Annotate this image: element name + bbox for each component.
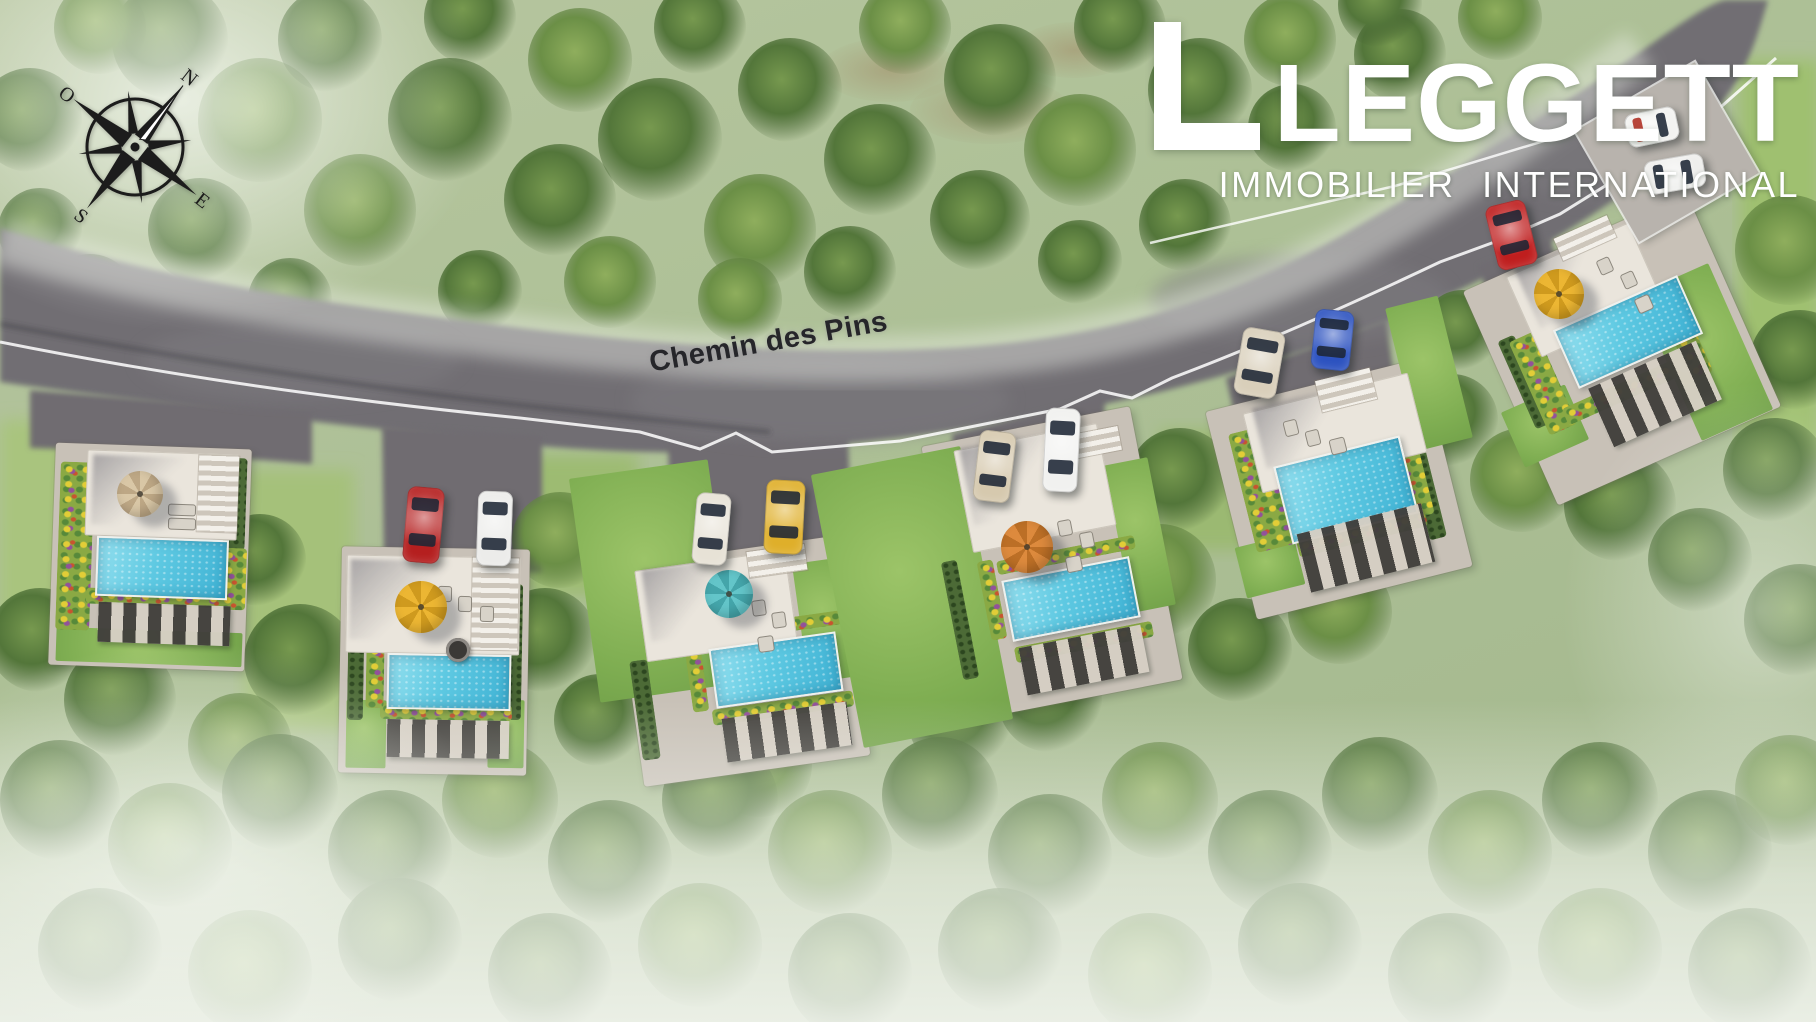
car-windshield <box>1048 459 1074 474</box>
compass-star <box>40 52 230 242</box>
villa-1-stairs <box>197 455 240 532</box>
car-windshield <box>411 497 439 512</box>
villa-3-terrace-furniture-1 <box>771 611 787 629</box>
white-car-villa-2 <box>476 490 514 566</box>
car-windshield <box>979 473 1007 488</box>
villa-4-terrace-furniture-2 <box>1065 555 1084 574</box>
car-windshield <box>1499 239 1530 256</box>
car-windshield <box>482 502 508 516</box>
villa-3-terrace-furniture-2 <box>757 635 775 653</box>
villa-2-pergola <box>387 719 510 759</box>
villa-1-swimming-pool <box>95 536 229 601</box>
car-windshield <box>1050 420 1076 436</box>
car-windshield <box>481 537 507 550</box>
villa-1-parasol-top <box>137 491 143 497</box>
car-windshield <box>1492 209 1523 227</box>
villa-2-terrace-furniture-2 <box>480 606 494 622</box>
white-car-villa-4 <box>1042 407 1081 493</box>
car-windshield <box>1241 368 1273 384</box>
red-car-villa-2 <box>402 486 445 565</box>
villa-2-flower-bed-1 <box>365 644 384 708</box>
villa-4-terrace-furniture-0 <box>1057 519 1074 537</box>
car-windshield <box>700 503 726 517</box>
villa-2-fire-pit <box>446 638 470 662</box>
villa-4-terrace-furniture-1 <box>1079 531 1096 549</box>
villa-1-pergola <box>97 602 230 647</box>
car-windshield <box>408 533 436 547</box>
blue-car-villa-5 <box>1310 308 1355 372</box>
car-windshield <box>769 525 798 538</box>
villa-4-parasol-top <box>1024 544 1030 550</box>
villa-2-parasol-top <box>418 604 424 610</box>
leggett-logo-tagline: IMMOBILIER INTERNATIONAL <box>1154 164 1800 206</box>
car-windshield <box>1246 337 1278 354</box>
compass-rose: N E S O <box>40 52 230 242</box>
car-windshield <box>983 440 1011 455</box>
site-plan-canvas: Chemin des Pins N E S O <box>0 0 1816 1022</box>
villa-6-parasol-top <box>1556 291 1562 297</box>
car-windshield <box>1317 346 1346 358</box>
car-windshield <box>697 536 723 550</box>
compass-east: E <box>191 188 214 213</box>
cream-car-villa-3 <box>691 492 732 567</box>
villa-1-terrace-furniture-1 <box>168 518 196 531</box>
compass-north: N <box>177 65 202 91</box>
car-windshield <box>1320 318 1349 331</box>
champagne-car-villa-5 <box>1232 326 1286 400</box>
car-windshield <box>771 490 800 504</box>
leggett-logo-name: LEGGETT <box>1274 57 1800 151</box>
villa-2-stairs <box>471 558 519 651</box>
red-car-villa-6 <box>1484 198 1540 272</box>
leggett-logo-mark <box>1154 22 1260 150</box>
compass-west: O <box>54 82 79 108</box>
villa-3-parasol-top <box>726 591 732 597</box>
yellow-car-villa-3 <box>763 479 806 555</box>
villa-2-swimming-pool <box>387 653 512 711</box>
compass-south: S <box>70 204 92 228</box>
leggett-logo: LEGGETT IMMOBILIER INTERNATIONAL <box>1154 22 1800 206</box>
